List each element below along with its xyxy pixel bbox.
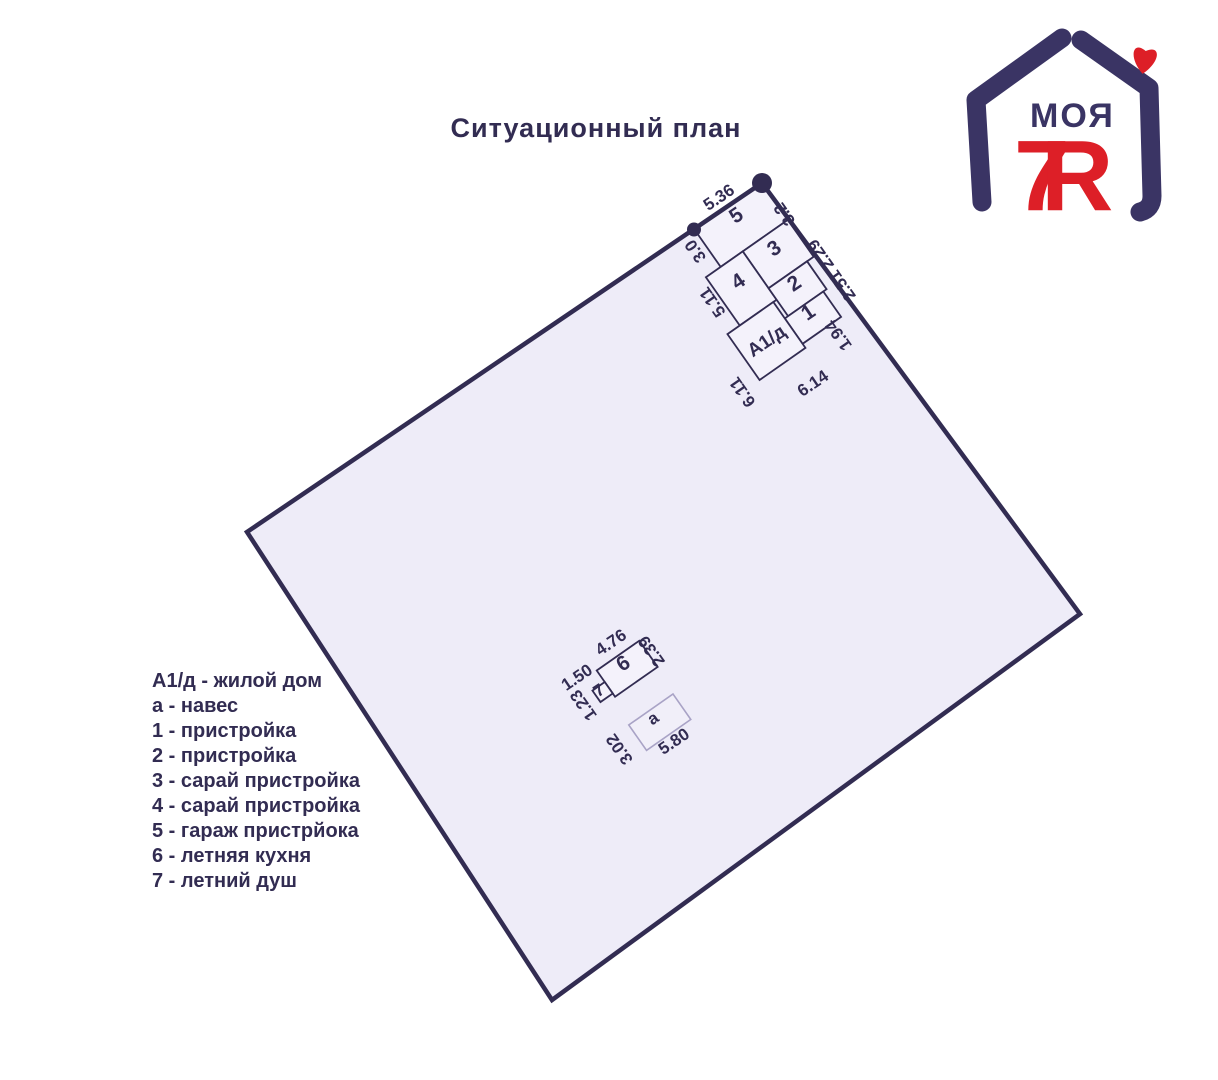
legend-item: 2 - пристройка bbox=[152, 744, 360, 769]
plot-area bbox=[247, 183, 1080, 1000]
logo-text-ya: Я bbox=[1041, 120, 1113, 232]
legend: А1/д - жилой дом а - навес 1 - пристройк… bbox=[152, 669, 360, 894]
legend-item: 7 - летний душ bbox=[152, 869, 360, 894]
boundary-marker-small bbox=[687, 223, 701, 237]
legend-item: 5 - гараж пристрйока bbox=[152, 819, 360, 844]
legend-item: а - навес bbox=[152, 694, 360, 719]
logo: МОЯ 7 Я bbox=[976, 38, 1158, 232]
boundary-marker-large bbox=[752, 173, 772, 193]
legend-item: 1 - пристройка bbox=[152, 719, 360, 744]
legend-item: 4 - сарай пристройка bbox=[152, 794, 360, 819]
legend-item: 6 - летняя кухня bbox=[152, 844, 360, 869]
situational-plan: 5 3 4 2 1 А1/д 6 7 a 5.36 3.2 2.51 2.29 … bbox=[0, 0, 1218, 1080]
legend-item: А1/д - жилой дом bbox=[152, 669, 360, 694]
legend-item: 3 - сарай пристройка bbox=[152, 769, 360, 794]
page-title: Ситуационный план bbox=[451, 113, 742, 143]
